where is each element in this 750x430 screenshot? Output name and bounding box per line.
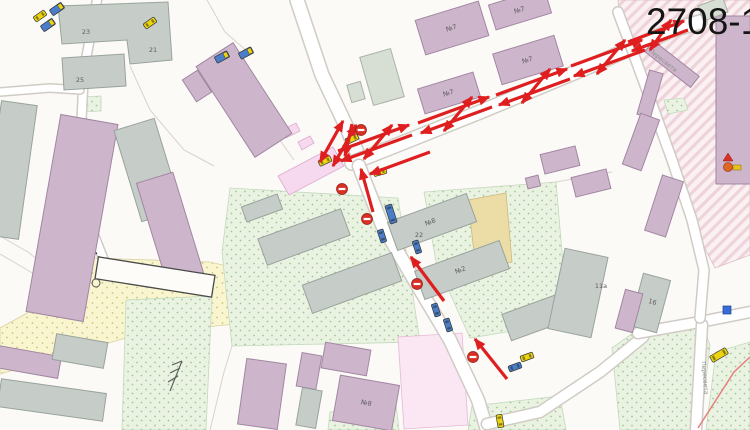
vehicle-icon-car: [520, 352, 534, 362]
building: [571, 169, 611, 197]
building: [238, 359, 287, 430]
vehicle-icon-truck: [40, 18, 55, 32]
building: [645, 175, 684, 237]
pink-area: [298, 136, 314, 150]
no-entry-sign-icon: [337, 184, 348, 195]
building-label: 21: [149, 46, 157, 54]
no-entry-sign-icon: [362, 214, 373, 225]
pink-area: [278, 147, 344, 195]
building: [62, 54, 126, 90]
building: [196, 43, 292, 158]
building: [321, 342, 371, 376]
building: [0, 379, 106, 421]
building: [296, 388, 322, 429]
no-entry-sign-icon: [412, 279, 423, 290]
building: [296, 353, 322, 390]
building: [488, 0, 551, 30]
building-label: 22: [415, 231, 423, 239]
fire-route-plan: 232125№7№7№7№722№8№211а16№8ПересветаПере…: [0, 0, 750, 430]
building: [347, 81, 365, 102]
park-area: [122, 296, 212, 430]
building: [360, 49, 405, 106]
building: [0, 101, 37, 240]
building: [525, 175, 540, 189]
parcel-line: [207, 0, 248, 52]
info-sign-icon: [723, 306, 731, 314]
plan-number: 2708-1: [646, 3, 750, 40]
vehicle-icon-car-blue: [508, 362, 522, 372]
vehicle-icon-car: [33, 10, 47, 22]
parcel-line: [210, 346, 232, 430]
building-label: 23: [82, 28, 90, 36]
building-label: 11а: [595, 282, 607, 290]
site-plan-map: 232125№7№7№7№722№8№211а16№8ПересветаПере…: [0, 0, 750, 430]
vehicle-icon-truck: [238, 47, 254, 60]
no-entry-sign-icon: [356, 125, 367, 136]
building-label: 25: [76, 76, 84, 84]
route-arrow: [475, 339, 507, 379]
building: [622, 113, 659, 171]
no-entry-sign-icon: [468, 352, 479, 363]
building: [540, 146, 580, 174]
